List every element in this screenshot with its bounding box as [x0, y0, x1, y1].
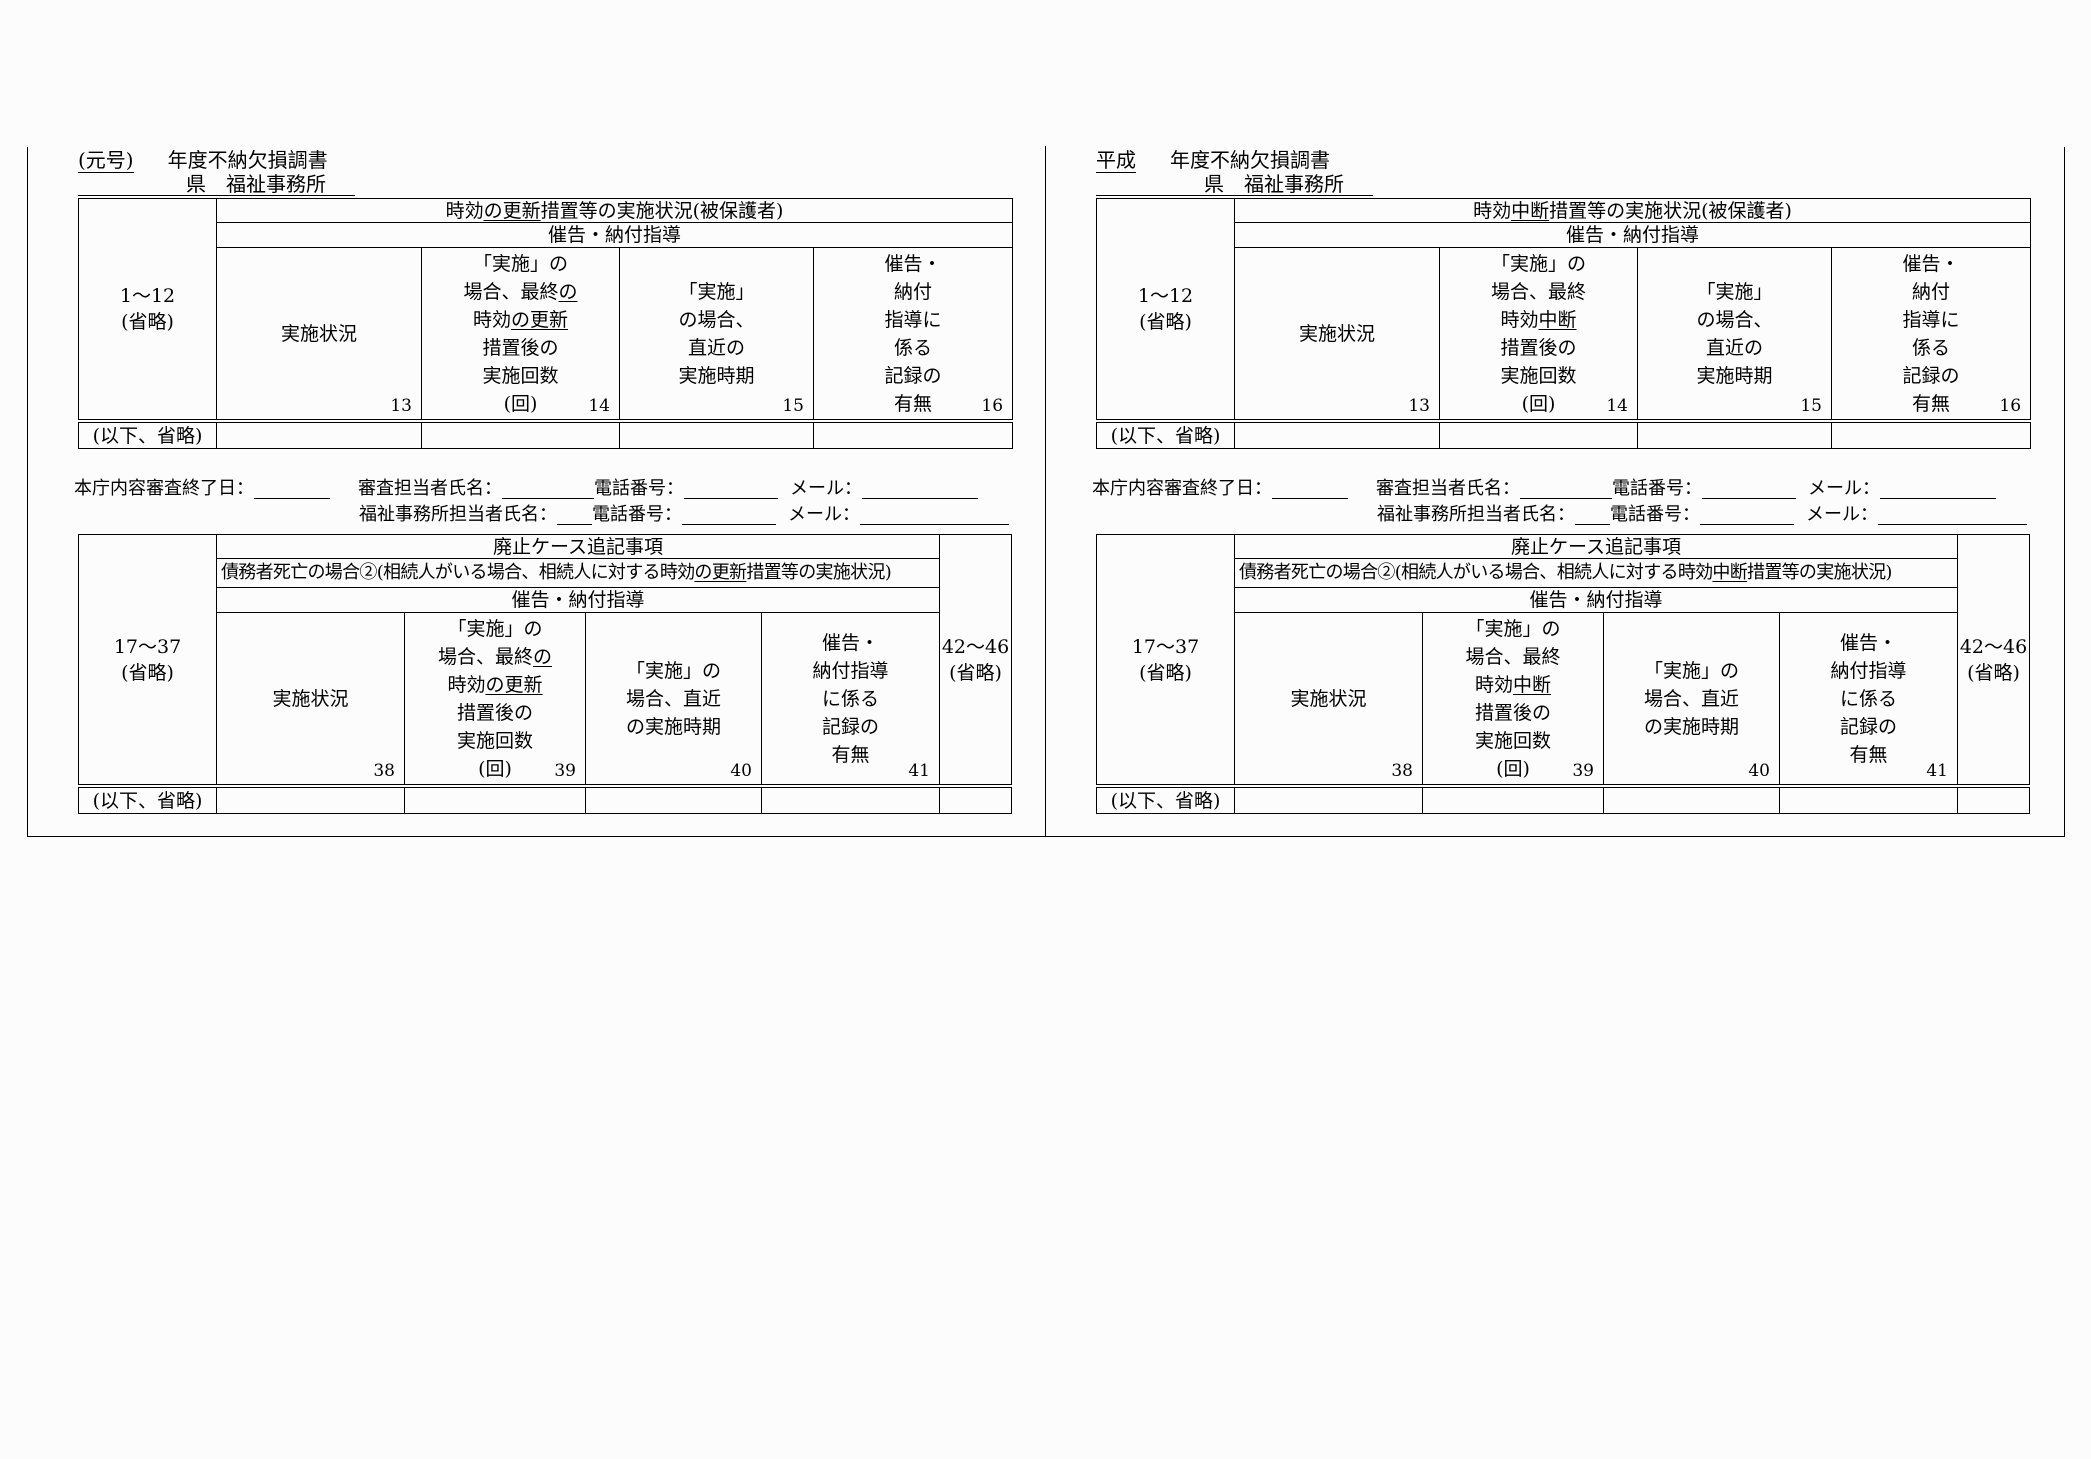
col-latest-period: 「実施」の場合、直近の実施時期40: [586, 613, 762, 787]
table2-header1: 廃止ケース追記事項: [217, 535, 940, 559]
col-number: 15: [782, 398, 804, 415]
blank-line: [1702, 479, 1796, 499]
col-number: 15: [1800, 398, 1822, 415]
blank-line: [502, 479, 594, 499]
era-label: (元号): [78, 149, 134, 173]
col-number: 38: [373, 763, 395, 780]
bottom-ellipsis-label: (以下、省略): [79, 421, 217, 449]
mail-label: メール：: [1808, 478, 1880, 499]
table2-header1: 廃止ケース追記事項: [1235, 535, 1958, 559]
office-line: 県 福祉事務所: [1096, 173, 1373, 196]
empty-cell: [1604, 786, 1780, 814]
mail-label: メール：: [790, 478, 862, 499]
col-number: 40: [1748, 763, 1770, 780]
col-record-existence: 催告・納付指導に係る記録の有無16: [1832, 248, 2031, 422]
col-latest-period: 「実施」の場合、直近の実施時期15: [620, 248, 814, 422]
col-implementation-status: 実施状況13: [217, 248, 422, 422]
review-line-1: 本庁内容審査終了日：審査担当者氏名：電話番号：メール：: [1092, 478, 1996, 499]
table1-header1: 時効中断措置等の実施状況(被保護者): [1235, 199, 2031, 223]
table2-header3: 催告・納付指導: [1235, 588, 1958, 613]
empty-cell: [1958, 786, 2030, 814]
mail-label: メール：: [788, 504, 860, 525]
table2-header2: 債務者死亡の場合②(相続人がいる場合、相続人に対する時効の更新措置等の実施状況): [217, 559, 940, 588]
empty-cell: [405, 786, 586, 814]
col-number: 40: [730, 763, 752, 780]
blank-line: [862, 479, 978, 499]
empty-cell: [1440, 421, 1638, 449]
office-staff-name-label: 福祉事務所担当者氏名：: [359, 504, 557, 525]
blank-line: [557, 505, 592, 525]
page-title: (元号)年度不納欠損調書: [78, 149, 328, 173]
office-line: 県 福祉事務所: [78, 173, 355, 196]
page-title: 平成年度不納欠損調書: [1096, 149, 1330, 173]
row-range-label: 17〜37(省略): [1097, 535, 1235, 787]
empty-cell: [217, 421, 422, 449]
empty-cell: [217, 786, 405, 814]
page-border-right: [2064, 147, 2065, 836]
review-line-1: 本庁内容審査終了日：審査担当者氏名：電話番号：メール：: [74, 478, 978, 499]
col-number: 41: [1926, 763, 1948, 780]
empty-cell: [762, 786, 940, 814]
empty-cell: [1423, 786, 1604, 814]
col-range-label: 42〜46(省略): [940, 535, 1012, 787]
blank-line: [1880, 479, 1996, 499]
title-suffix: 年度不納欠損調書: [168, 148, 328, 172]
col-number: 16: [981, 398, 1003, 415]
abolished-case-table: 17〜37(省略) 廃止ケース追記事項 42〜46(省略) 債務者死亡の場合②(…: [1096, 534, 2030, 814]
empty-cell: [940, 786, 1012, 814]
col-implementation-status: 実施状況38: [217, 613, 405, 787]
reviewer-name-label: 審査担当者氏名：: [1376, 478, 1520, 499]
empty-cell: [814, 421, 1013, 449]
col-number: 41: [908, 763, 930, 780]
title-suffix: 年度不納欠損調書: [1170, 148, 1330, 172]
blank-line: [1878, 505, 2027, 525]
office-staff-name-label: 福祉事務所担当者氏名：: [1377, 504, 1575, 525]
empty-cell: [1638, 421, 1832, 449]
col-range-label: 42〜46(省略): [1958, 535, 2030, 787]
page-border-left: [27, 147, 28, 836]
table2-header2: 債務者死亡の場合②(相続人がいる場合、相続人に対する時効中断措置等の実施状況): [1235, 559, 1958, 588]
row-range-label: 1〜12(省略): [1097, 199, 1235, 422]
empty-cell: [586, 786, 762, 814]
col-record-existence: 催告・納付指導に係る記録の有無41: [1780, 613, 1958, 787]
col-final-measure-count: 「実施」の場合、最終時効中断措置後の実施回数(回)39: [1423, 613, 1604, 787]
table2-header3: 催告・納付指導: [217, 588, 940, 613]
col-number: 13: [390, 398, 412, 415]
table1-header2: 催告・納付指導: [217, 223, 1013, 248]
empty-cell: [1235, 421, 1440, 449]
review-finish-date-label: 本庁内容審査終了日：: [1092, 478, 1272, 499]
mail-label: メール：: [1806, 504, 1878, 525]
phone-label: 電話番号：: [1612, 478, 1702, 499]
row-range-label: 17〜37(省略): [79, 535, 217, 787]
review-finish-date-label: 本庁内容審査終了日：: [74, 478, 254, 499]
reviewer-name-label: 審査担当者氏名：: [358, 478, 502, 499]
col-number: 38: [1391, 763, 1413, 780]
blank-line: [254, 479, 330, 499]
page-border-middle: [1045, 146, 1046, 836]
print-preview-canvas: { "review": { "l1_a": "本庁内容審査終了日：", "l1_…: [0, 0, 2091, 1459]
form-page-heisei: 平成年度不納欠損調書 県 福祉事務所 1〜12(省略) 時効中断措置等の実施状況…: [1096, 147, 2032, 837]
review-line-2: 福祉事務所担当者氏名：電話番号：メール：: [359, 504, 1009, 525]
form-page-reiwa: (元号)年度不納欠損調書 県 福祉事務所 1〜12(省略) 時効の更新措置等の実…: [78, 147, 1014, 837]
col-record-existence: 催告・納付指導に係る記録の有無16: [814, 248, 1013, 422]
phone-label: 電話番号：: [1610, 504, 1700, 525]
col-number: 39: [1572, 763, 1594, 780]
empty-cell: [1235, 786, 1423, 814]
blank-line: [1575, 505, 1610, 525]
col-implementation-status: 実施状況38: [1235, 613, 1423, 787]
table1-header1: 時効の更新措置等の実施状況(被保護者): [217, 199, 1013, 223]
col-number: 14: [588, 398, 610, 415]
col-implementation-status: 実施状況13: [1235, 248, 1440, 422]
col-final-measure-count: 「実施」の場合、最終時効中断措置後の実施回数(回)14: [1440, 248, 1638, 422]
blank-line: [860, 505, 1009, 525]
empty-cell: [1780, 786, 1958, 814]
blank-line: [1272, 479, 1348, 499]
phone-label: 電話番号：: [592, 504, 682, 525]
empty-cell: [620, 421, 814, 449]
bottom-ellipsis-label: (以下、省略): [1097, 786, 1235, 814]
era-label: 平成: [1096, 149, 1136, 173]
statute-interruption-table: 1〜12(省略) 時効中断措置等の実施状況(被保護者) 催告・納付指導 実施状況…: [1096, 198, 2031, 449]
bottom-ellipsis-label: (以下、省略): [1097, 421, 1235, 449]
col-number: 13: [1408, 398, 1430, 415]
col-number: 14: [1606, 398, 1628, 415]
empty-cell: [422, 421, 620, 449]
col-latest-period: 「実施」の場合、直近の実施時期15: [1638, 248, 1832, 422]
blank-line: [684, 479, 778, 499]
col-latest-period: 「実施」の場合、直近の実施時期40: [1604, 613, 1780, 787]
phone-label: 電話番号：: [594, 478, 684, 499]
blank-line: [682, 505, 776, 525]
col-final-measure-count: 「実施」の場合、最終の時効の更新措置後の実施回数(回)39: [405, 613, 586, 787]
empty-cell: [1832, 421, 2031, 449]
statute-renewal-table: 1〜12(省略) 時効の更新措置等の実施状況(被保護者) 催告・納付指導 実施状…: [78, 198, 1013, 449]
review-line-2: 福祉事務所担当者氏名：電話番号：メール：: [1377, 504, 2027, 525]
col-record-existence: 催告・納付指導に係る記録の有無41: [762, 613, 940, 787]
blank-line: [1520, 479, 1612, 499]
table1-header2: 催告・納付指導: [1235, 223, 2031, 248]
row-range-label: 1〜12(省略): [79, 199, 217, 422]
col-final-measure-count: 「実施」の場合、最終の時効の更新措置後の実施回数(回)14: [422, 248, 620, 422]
bottom-ellipsis-label: (以下、省略): [79, 786, 217, 814]
col-number: 16: [1999, 398, 2021, 415]
abolished-case-table: 17〜37(省略) 廃止ケース追記事項 42〜46(省略) 債務者死亡の場合②(…: [78, 534, 1012, 814]
col-number: 39: [554, 763, 576, 780]
blank-line: [1700, 505, 1794, 525]
